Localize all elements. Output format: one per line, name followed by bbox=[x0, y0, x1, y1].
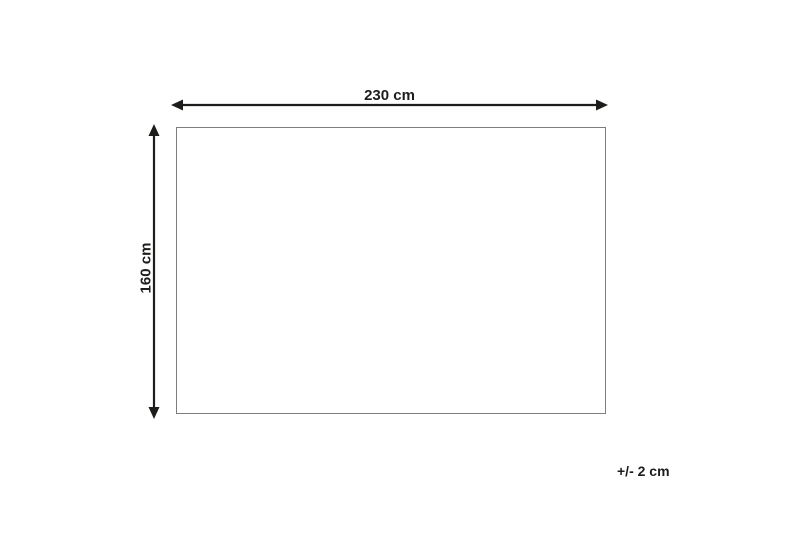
width-dimension-label: 230 cm bbox=[172, 88, 607, 103]
height-dimension-label: 160 cm bbox=[139, 243, 154, 294]
product-outline-rectangle bbox=[176, 127, 606, 414]
tolerance-label: +/- 2 cm bbox=[617, 464, 670, 478]
arrowhead-down-icon bbox=[149, 407, 160, 419]
arrowhead-up-icon bbox=[149, 124, 160, 136]
dimension-diagram: 230 cm 160 cm +/- 2 cm bbox=[0, 0, 800, 533]
